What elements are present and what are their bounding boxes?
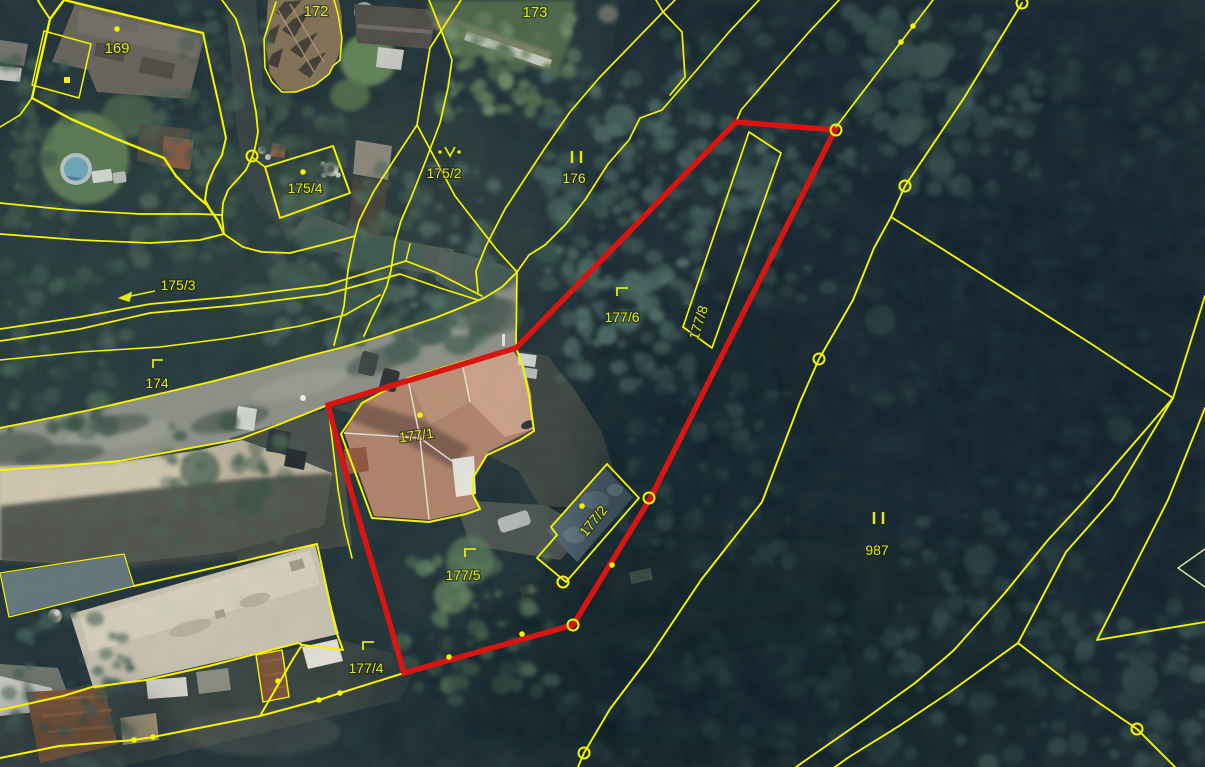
svg-text:173: 173 [522,4,547,21]
svg-text:175/4: 175/4 [287,180,322,196]
svg-text:169: 169 [104,40,129,57]
svg-text:175/2: 175/2 [426,165,461,181]
svg-text:172: 172 [303,3,328,20]
svg-text:987: 987 [865,542,889,558]
svg-text:177/5: 177/5 [445,567,480,583]
svg-text:175/3: 175/3 [160,277,195,293]
svg-text:174: 174 [145,375,169,391]
svg-text:177/4: 177/4 [348,660,383,676]
svg-text:176: 176 [562,170,586,186]
svg-text:177/6: 177/6 [604,309,639,325]
